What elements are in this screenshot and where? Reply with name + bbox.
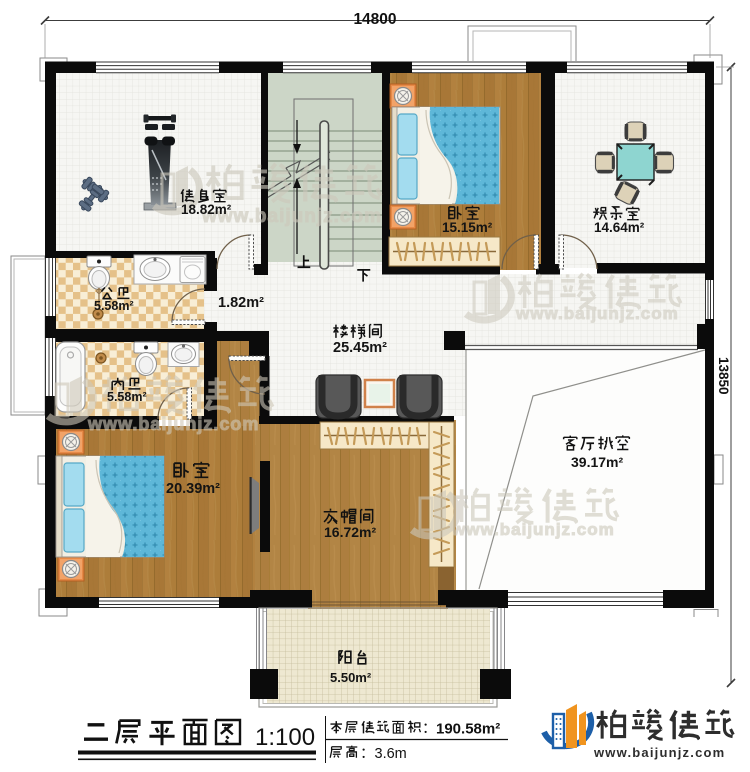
svg-text:5.58m²: 5.58m² bbox=[94, 299, 134, 313]
svg-text:190.58m²: 190.58m² bbox=[436, 721, 500, 738]
svg-text:：3.6m: ：3.6m bbox=[360, 746, 407, 762]
svg-text:5.58m²: 5.58m² bbox=[107, 390, 147, 404]
svg-text:20.39m²: 20.39m² bbox=[166, 481, 220, 497]
svg-text:www.baijunjz.com: www.baijunjz.com bbox=[451, 520, 615, 539]
svg-text:25.45m²: 25.45m² bbox=[333, 340, 387, 356]
svg-text:13850: 13850 bbox=[716, 357, 731, 395]
svg-text:39.17m²: 39.17m² bbox=[571, 454, 623, 470]
svg-text:1.82m²: 1.82m² bbox=[218, 295, 264, 311]
svg-text:18.82m²: 18.82m² bbox=[181, 202, 232, 217]
svg-text:www.baijunjz.com: www.baijunjz.com bbox=[593, 745, 725, 760]
svg-text:：: ： bbox=[422, 721, 437, 737]
svg-text:14800: 14800 bbox=[353, 11, 396, 28]
svg-text:www.baijunjz.com: www.baijunjz.com bbox=[87, 414, 259, 434]
svg-text:15.15m²: 15.15m² bbox=[442, 220, 493, 235]
svg-text:16.72m²: 16.72m² bbox=[324, 524, 376, 540]
svg-text:1:100: 1:100 bbox=[255, 724, 315, 751]
svg-text:www.baijunjz.com: www.baijunjz.com bbox=[515, 304, 679, 323]
svg-text:5.50m²: 5.50m² bbox=[330, 670, 372, 685]
svg-text:14.64m²: 14.64m² bbox=[594, 220, 645, 235]
